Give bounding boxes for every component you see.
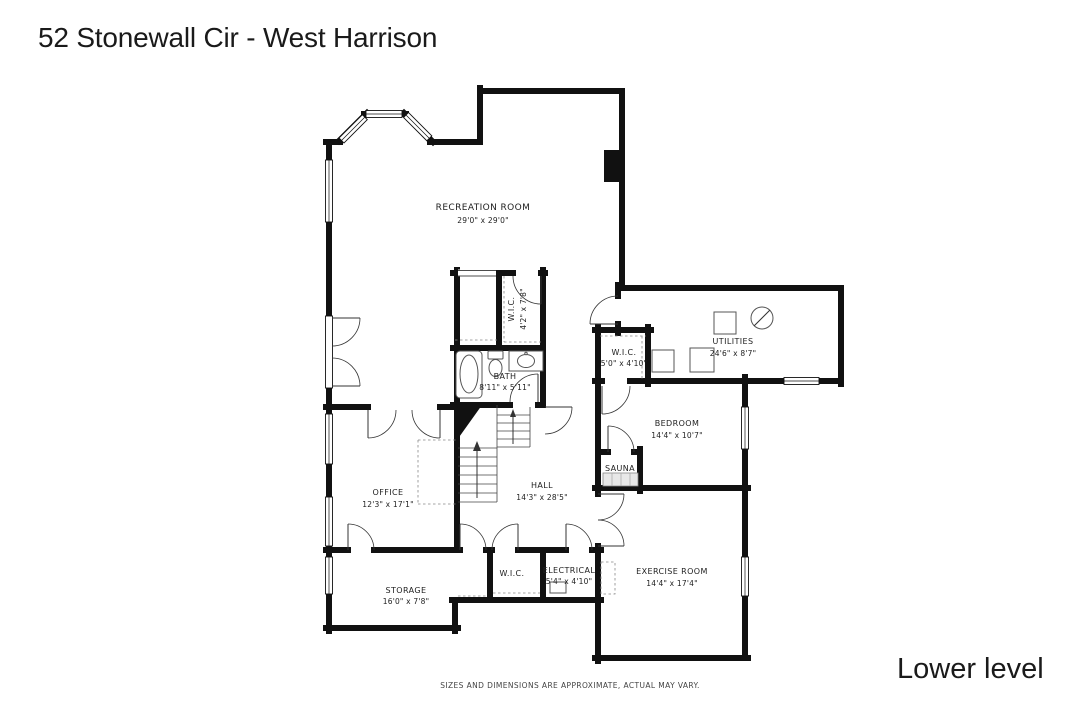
- door-hall-wic: [492, 524, 518, 550]
- bathtub: [456, 351, 482, 398]
- floorplan-page: 52 Stonewall Cir - West Harrison: [0, 0, 1086, 723]
- room-dims-exercise: 14'4" x 17'4": [646, 579, 697, 588]
- room-dims-bath: 8'11" x 5'11": [479, 383, 530, 392]
- stairs-up-arrow: [473, 409, 516, 498]
- water-heater: [751, 307, 773, 329]
- cased-opening-closet: [458, 270, 496, 277]
- door-office-storage: [348, 524, 374, 550]
- stair-break-corner: [457, 405, 482, 440]
- room-label-exercise: EXERCISE ROOM: [636, 567, 708, 576]
- room-label-wic-lower: W.I.C.: [500, 569, 525, 578]
- room-label-office: OFFICE: [373, 488, 404, 497]
- room-label-electrical: ELECTRICAL: [543, 566, 596, 575]
- sink-vanity: [509, 351, 543, 371]
- floorplan-drawing: RECREATION ROOM 29'0" x 29'0" W.I.C. 4'2…: [0, 0, 1086, 723]
- window-office-west-2: [326, 497, 333, 546]
- window-exercise-east: [742, 557, 749, 596]
- window-bedroom-east: [742, 407, 749, 449]
- french-door-recreation: [326, 316, 361, 388]
- window-utilities-south: [784, 378, 819, 385]
- room-dims-hall: 14'3" x 28'5": [516, 493, 567, 502]
- door-stair-landing: [545, 407, 572, 434]
- walls: [326, 88, 841, 661]
- room-label-wic-bedroom: W.I.C.: [612, 348, 637, 357]
- door-utilities: [590, 296, 618, 324]
- room-labels: RECREATION ROOM 29'0" x 29'0" W.I.C. 4'2…: [362, 203, 756, 606]
- sauna-bench: [603, 473, 638, 486]
- room-label-wic-upper: W.I.C.: [507, 297, 516, 322]
- door-sauna: [608, 426, 634, 452]
- window-bay-right: [404, 113, 432, 141]
- room-label-bath: BATH: [494, 372, 517, 381]
- window-bay-top: [366, 111, 402, 118]
- room-label-hall: HALL: [531, 481, 553, 490]
- double-door-exercise: [598, 494, 624, 546]
- double-door-office: [368, 410, 440, 438]
- disclaimer-text: SIZES AND DIMENSIONS ARE APPROXIMATE, AC…: [330, 681, 810, 690]
- room-dims-bedroom: 14'4" x 10'7": [651, 431, 702, 440]
- window-office-west-1: [326, 414, 333, 464]
- window-recreation-west: [326, 160, 333, 222]
- level-label: Lower level: [897, 653, 1044, 686]
- room-dims-wic-bedroom: 5'0" x 4'10": [601, 359, 648, 368]
- room-dims-wic-upper: 4'2" x 7'8": [519, 288, 528, 330]
- door-hall-electrical: [566, 524, 592, 550]
- room-dims-office: 12'3" x 17'1": [362, 500, 413, 509]
- room-label-bedroom: BEDROOM: [655, 419, 700, 428]
- window-bay-left: [339, 115, 367, 143]
- room-label-storage: STORAGE: [386, 586, 427, 595]
- door-bedroom: [602, 386, 630, 414]
- room-label-sauna: SAUNA: [605, 464, 635, 473]
- room-dims-recreation: 29'0" x 29'0": [457, 216, 508, 225]
- door-hall-storage: [460, 524, 486, 550]
- room-label-utilities: UTILITIES: [713, 337, 754, 346]
- room-label-recreation: RECREATION ROOM: [436, 203, 531, 213]
- stairs: [457, 405, 530, 502]
- room-dims-utilities: 24'6" x 8'7": [710, 349, 757, 358]
- room-dims-storage: 16'0" x 7'8": [383, 597, 430, 606]
- room-dims-electrical: 5'4" x 4'10": [546, 577, 593, 586]
- chimney: [604, 150, 622, 182]
- window-storage-west: [326, 557, 333, 594]
